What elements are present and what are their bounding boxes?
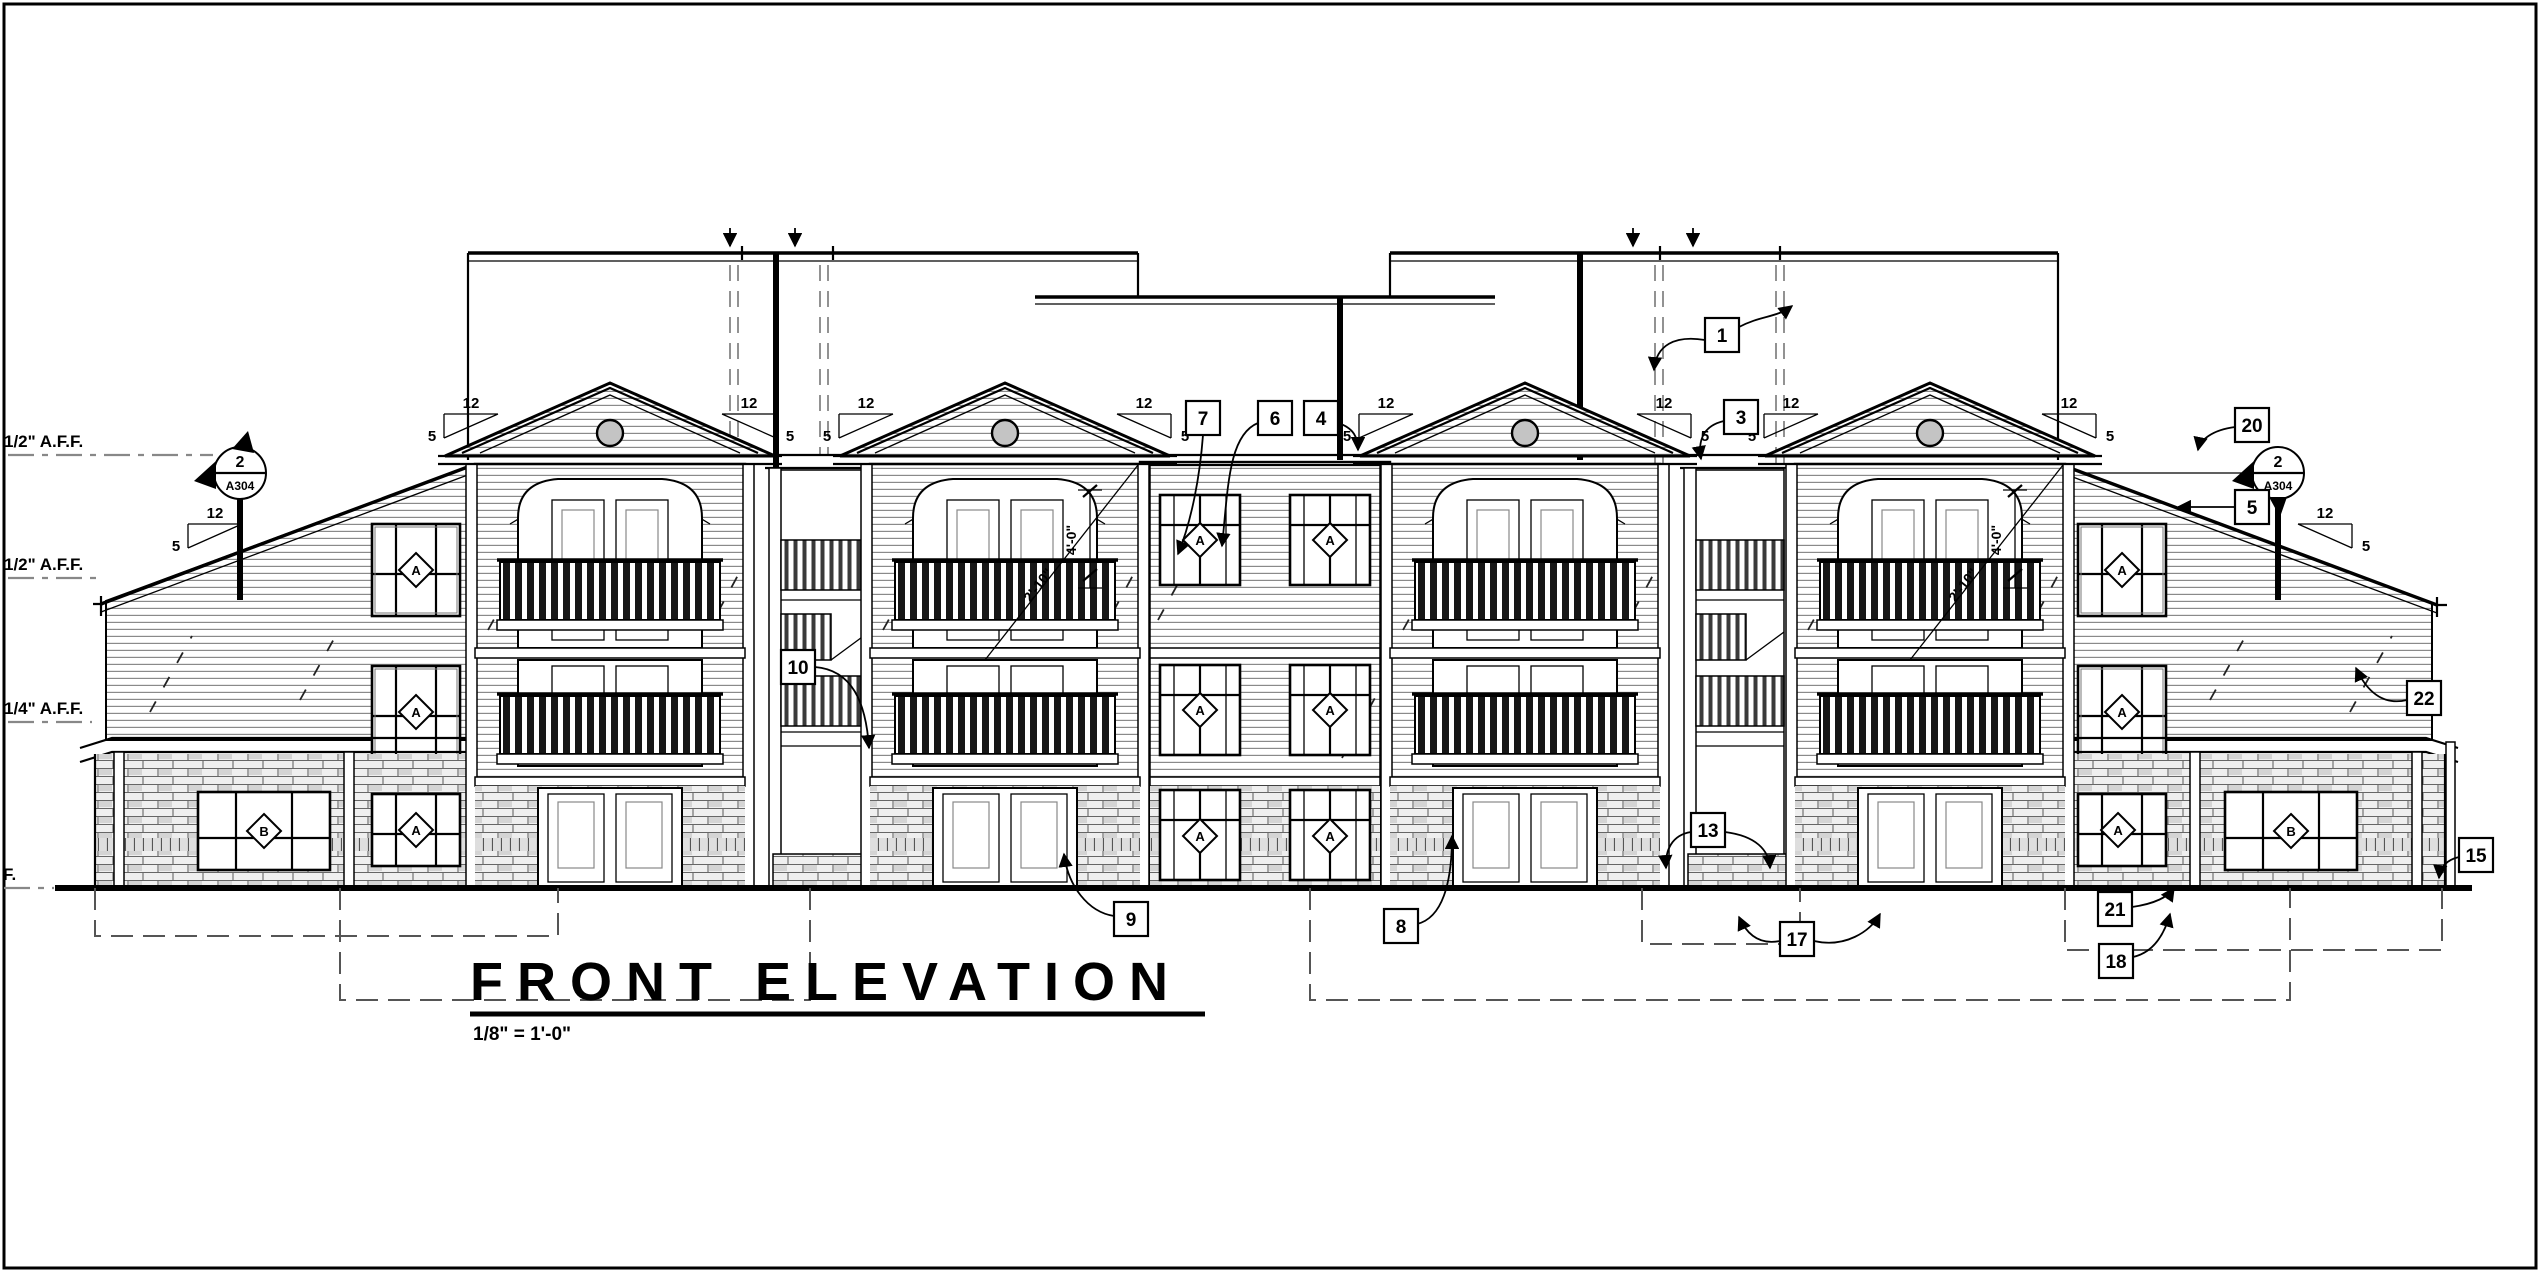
svg-text:5: 5 <box>428 428 436 445</box>
center-section <box>1134 455 1396 888</box>
front-elevation-drawing: 1/2" A.F.F. 1/2" A.F.F. 1/4" A.F.F. F. 2… <box>0 0 2540 1272</box>
callout-15: 15 <box>2459 838 2493 872</box>
svg-text:18: 18 <box>2105 952 2126 973</box>
svg-text:A: A <box>2113 823 2123 838</box>
svg-text:12: 12 <box>207 505 224 522</box>
svg-text:12: 12 <box>1656 395 1673 412</box>
porch-post <box>114 752 124 888</box>
callout-6: 6 <box>1258 401 1292 435</box>
callout-9: 9 <box>1114 902 1148 936</box>
drawing-title: FRONT ELEVATION <box>470 952 1182 1012</box>
svg-text:12: 12 <box>1136 395 1153 412</box>
callout-21: 21 <box>2098 892 2132 926</box>
svg-text:3: 3 <box>1736 408 1747 429</box>
svg-text:A: A <box>1325 829 1335 844</box>
svg-text:12: 12 <box>741 395 758 412</box>
callout-18: 18 <box>2099 944 2133 978</box>
svg-text:22: 22 <box>2413 689 2434 710</box>
svg-text:A: A <box>1195 703 1205 718</box>
callout-8: 8 <box>1384 909 1418 943</box>
svg-text:A: A <box>411 823 421 838</box>
drawing-scale: 1/8" = 1'-0" <box>473 1024 571 1045</box>
svg-text:5: 5 <box>1343 428 1351 445</box>
svg-text:B: B <box>259 824 268 839</box>
svg-text:1: 1 <box>1717 326 1728 347</box>
svg-text:12: 12 <box>2317 505 2334 522</box>
callout-3: 3 <box>1724 400 1758 434</box>
callout-10: 10 <box>781 650 815 684</box>
svg-text:A: A <box>1325 533 1335 548</box>
porch-post <box>2190 752 2200 888</box>
svg-text:4: 4 <box>1316 409 1327 430</box>
section-detail-number: 2 <box>236 454 245 471</box>
svg-text:20: 20 <box>2241 416 2262 437</box>
porch-post <box>344 752 354 888</box>
svg-text:15: 15 <box>2465 846 2487 867</box>
callout-7: 7 <box>1186 401 1220 435</box>
svg-text:17: 17 <box>1786 930 1807 951</box>
svg-text:6: 6 <box>1270 409 1281 430</box>
callout-13: 13 <box>1691 813 1725 847</box>
svg-text:A: A <box>1195 533 1205 548</box>
svg-text:12: 12 <box>1783 395 1800 412</box>
floor-band <box>1150 648 1380 658</box>
callout-22: 22 <box>2407 681 2441 715</box>
svg-text:A: A <box>411 705 421 720</box>
svg-text:5: 5 <box>2247 498 2258 519</box>
svg-text:A: A <box>2117 563 2127 578</box>
svg-text:A: A <box>411 563 421 578</box>
datum-label: F. <box>3 865 16 884</box>
svg-text:5: 5 <box>2362 538 2370 555</box>
svg-text:13: 13 <box>1697 821 1718 842</box>
datum-label: 1/4" A.F.F. <box>4 699 83 718</box>
datum-label: 1/2" A.F.F. <box>4 555 83 574</box>
svg-text:5: 5 <box>2106 428 2114 445</box>
drawing-sheet: 1/2" A.F.F. 1/2" A.F.F. 1/4" A.F.F. F. 2… <box>0 0 2540 1272</box>
svg-text:A: A <box>1325 703 1335 718</box>
svg-text:A: A <box>2117 705 2127 720</box>
floor-band <box>1150 777 1380 786</box>
callout-5: 5 <box>2235 490 2269 524</box>
porch-post <box>2412 752 2422 888</box>
svg-text:5: 5 <box>786 428 794 445</box>
svg-text:7: 7 <box>1198 409 1209 430</box>
svg-text:12: 12 <box>463 395 480 412</box>
section-sheet-number: A304 <box>226 479 255 493</box>
svg-text:21: 21 <box>2104 900 2126 921</box>
svg-text:5: 5 <box>823 428 831 445</box>
svg-text:A: A <box>1195 829 1205 844</box>
svg-text:12: 12 <box>858 395 875 412</box>
svg-text:9: 9 <box>1126 910 1137 931</box>
callout-4: 4 <box>1304 401 1338 435</box>
svg-text:12: 12 <box>1378 395 1395 412</box>
section-detail-number: 2 <box>2274 454 2283 471</box>
svg-text:8: 8 <box>1396 917 1407 938</box>
callout-20: 20 <box>2235 408 2269 442</box>
callout-17: 17 <box>1780 922 1814 956</box>
svg-text:B: B <box>2286 824 2295 839</box>
svg-text:12: 12 <box>2061 395 2078 412</box>
svg-text:5: 5 <box>172 538 180 555</box>
datum-label: 1/2" A.F.F. <box>4 432 83 451</box>
svg-text:10: 10 <box>787 658 808 679</box>
callout-1: 1 <box>1705 318 1739 352</box>
downspout <box>2446 742 2455 888</box>
